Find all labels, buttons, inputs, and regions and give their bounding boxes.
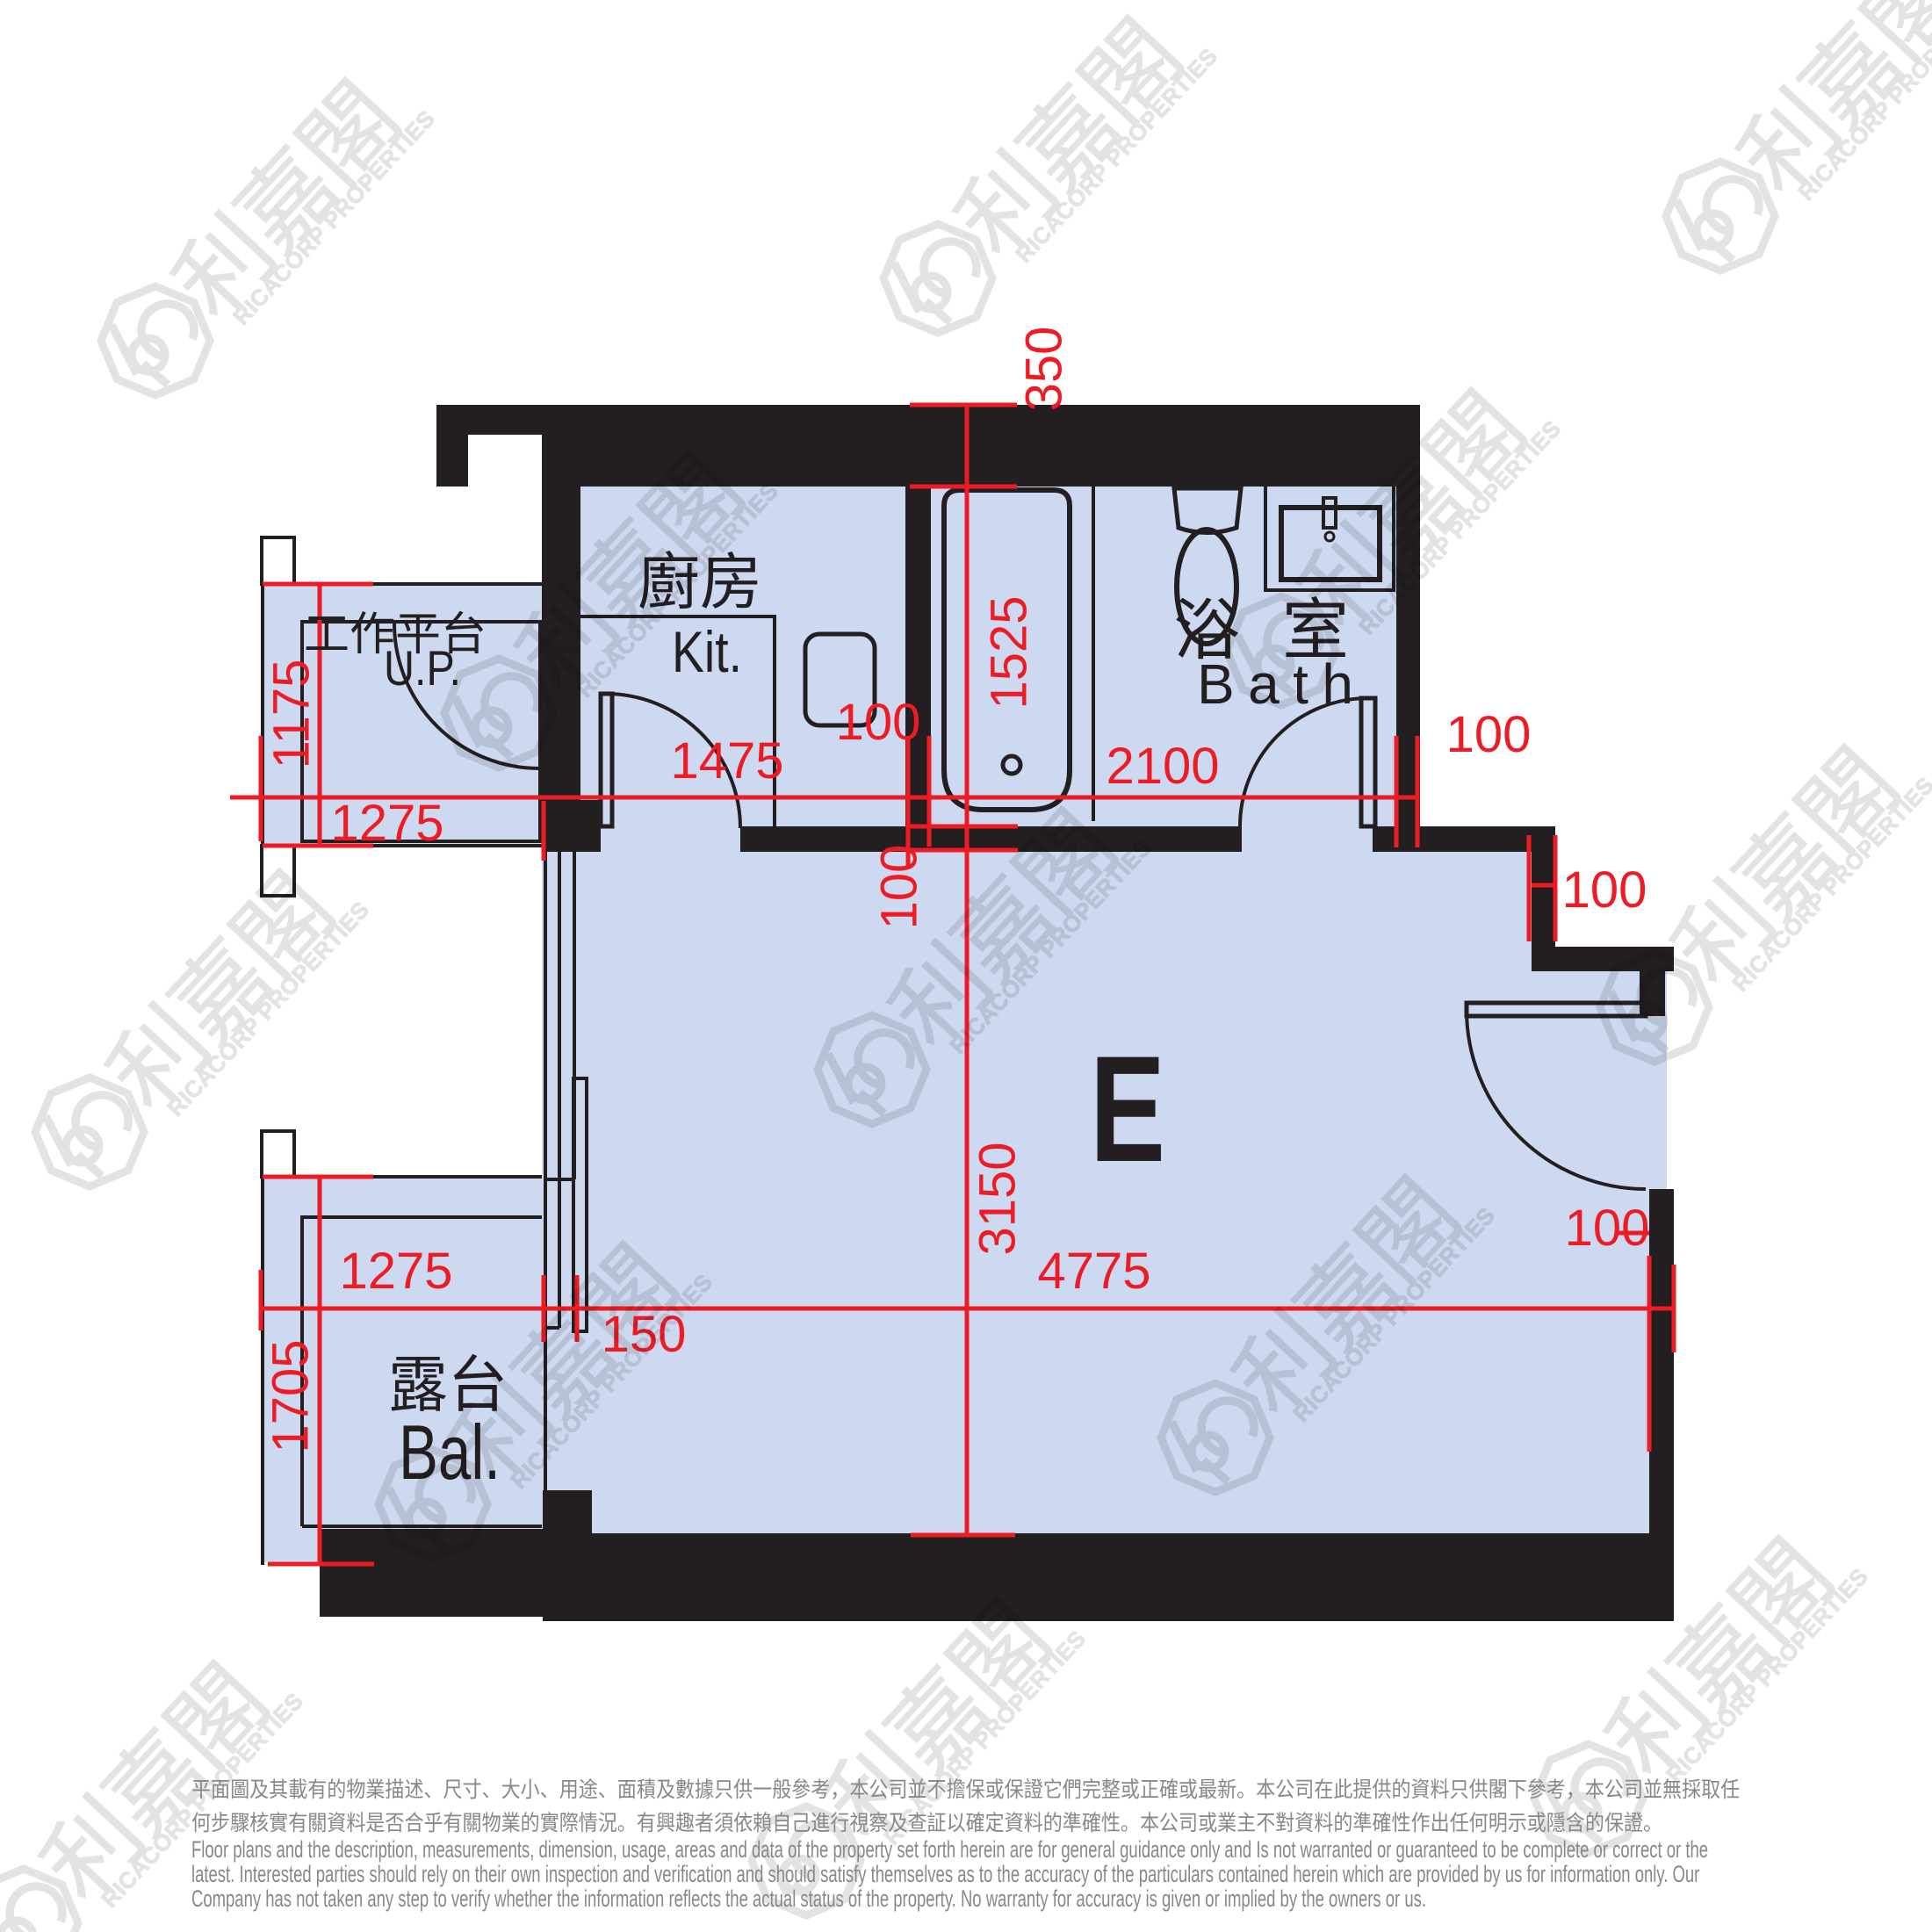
svg-text:1705: 1705 [262, 1339, 319, 1453]
svg-text:E: E [1090, 1025, 1165, 1193]
svg-text:何步驟核實有關資料是否合乎有關物業的實際情況。有興趣者須依賴: 何步驟核實有關資料是否合乎有關物業的實際情況。有興趣者須依賴自己進行視察及查証以… [191, 1811, 1662, 1835]
svg-text:Floor plans and the descriptio: Floor plans and the description, measure… [191, 1835, 1708, 1862]
svg-text:100: 100 [836, 694, 921, 751]
svg-text:1475: 1475 [670, 732, 783, 789]
svg-text:3150: 3150 [969, 1142, 1026, 1255]
svg-text:1175: 1175 [263, 660, 320, 769]
svg-text:4775: 4775 [1037, 1243, 1150, 1300]
svg-text:平面圖及其載有的物業描述、尺寸、大小、用途、面積及數據只供一: 平面圖及其載有的物業描述、尺寸、大小、用途、面積及數據只供一般參考，本公司並不擔… [191, 1777, 1740, 1801]
svg-text:Company has not taken any step: Company has not taken any step to verify… [191, 1885, 1426, 1911]
svg-text:100: 100 [1562, 861, 1647, 919]
svg-text:U.P.: U.P. [384, 640, 461, 696]
svg-text:100: 100 [1446, 706, 1532, 763]
svg-text:350: 350 [1015, 327, 1072, 412]
svg-text:1275: 1275 [339, 1243, 452, 1300]
svg-text:latest. Interested parties sho: latest. Interested parties should rely o… [191, 1860, 1700, 1886]
svg-text:100: 100 [1565, 1200, 1650, 1257]
svg-text:Kit.: Kit. [672, 619, 742, 684]
svg-text:100: 100 [870, 845, 927, 930]
svg-text:1275: 1275 [330, 795, 443, 852]
svg-text:1525: 1525 [980, 595, 1037, 709]
svg-text:2100: 2100 [1106, 738, 1219, 795]
